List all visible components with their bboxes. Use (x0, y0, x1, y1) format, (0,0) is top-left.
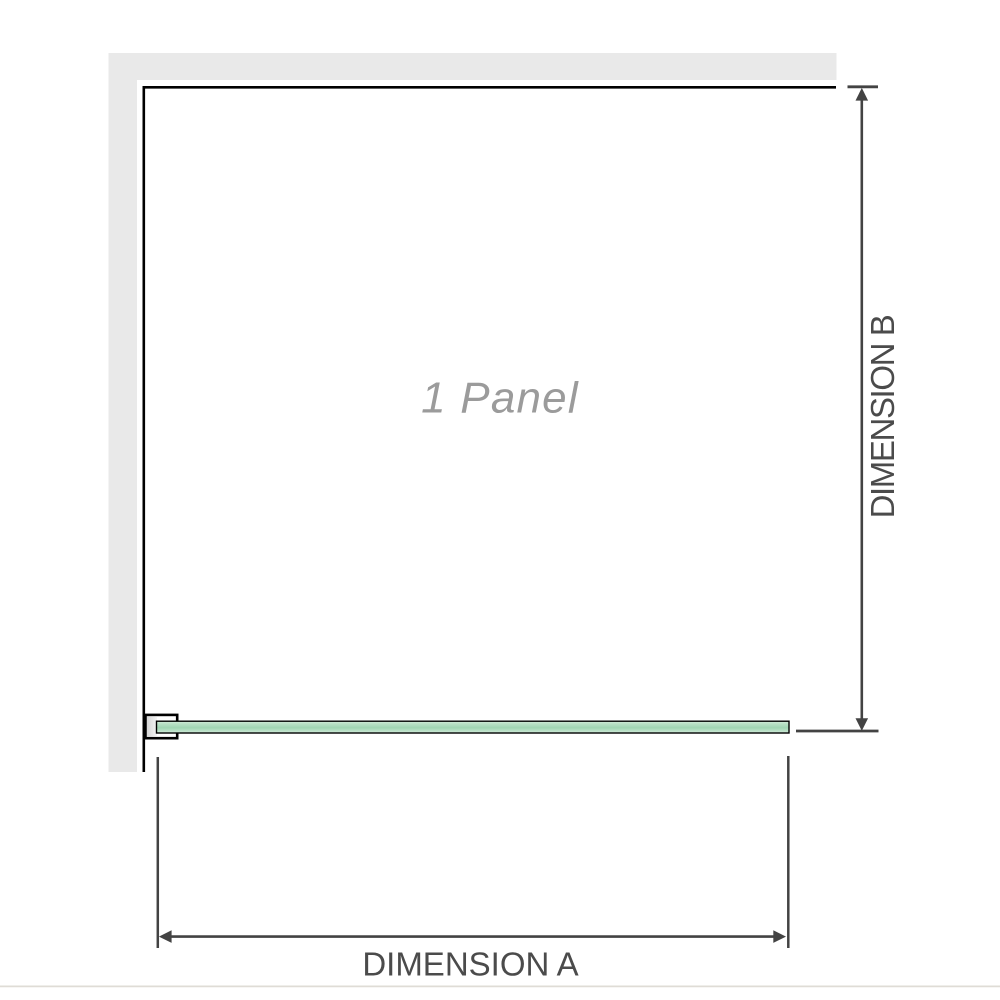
svg-text:DIMENSION A: DIMENSION A (362, 946, 578, 983)
svg-text:DIMENSION B: DIMENSION B (864, 315, 901, 518)
svg-text:1 Panel: 1 Panel (421, 374, 579, 423)
